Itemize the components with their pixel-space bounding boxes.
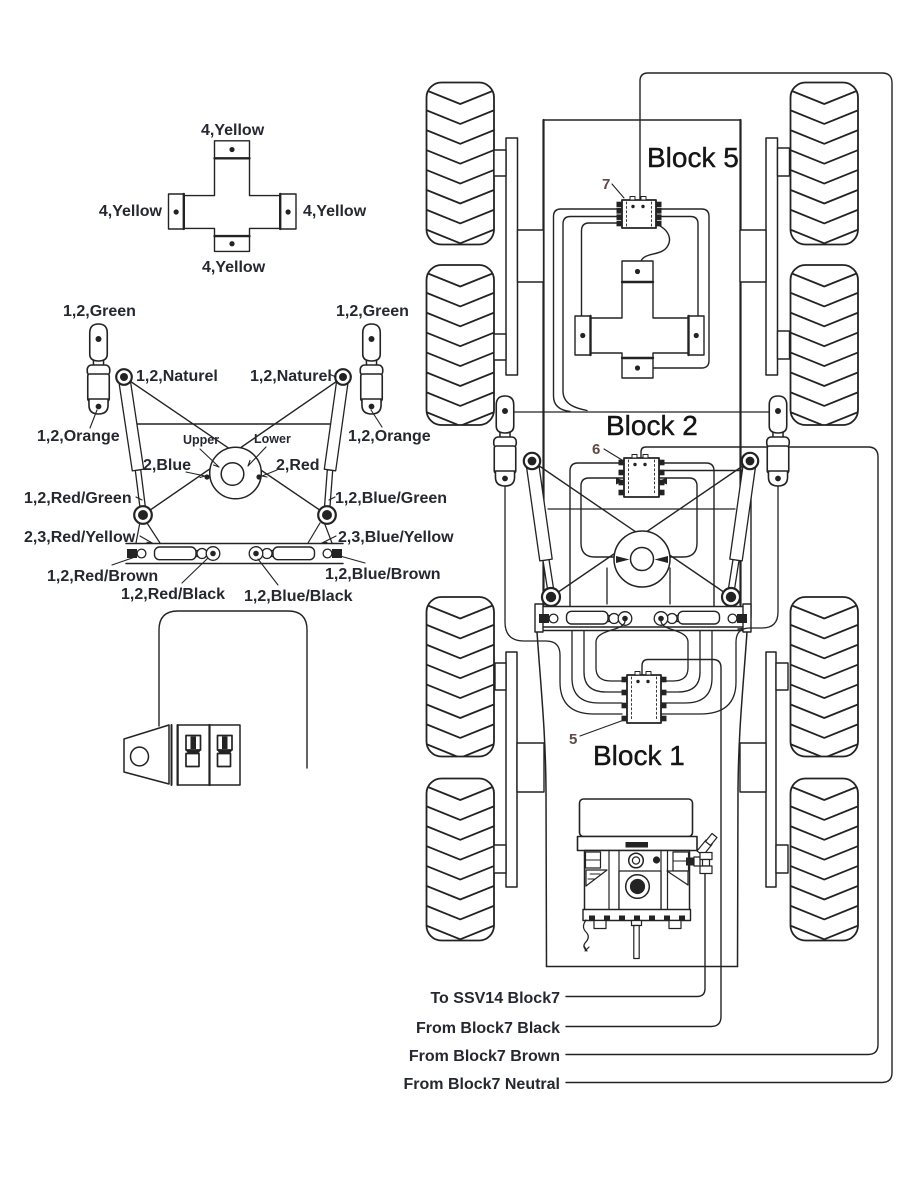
svg-text:1,2,Blue/Black: 1,2,Blue/Black — [244, 588, 353, 605]
svg-text:2,Blue: 2,Blue — [143, 457, 191, 474]
svg-text:Block 2: Block 2 — [606, 410, 698, 441]
svg-text:1,2,Red/Black: 1,2,Red/Black — [121, 586, 225, 603]
svg-text:1,2,Blue/Brown: 1,2,Blue/Brown — [325, 566, 441, 583]
svg-text:4,Yellow: 4,Yellow — [99, 203, 163, 220]
svg-text:1,2,Red/Green: 1,2,Red/Green — [24, 490, 132, 507]
svg-text:4,Yellow: 4,Yellow — [202, 259, 266, 276]
svg-text:1,2,Green: 1,2,Green — [336, 303, 409, 320]
svg-text:From Block7 Black: From Block7 Black — [416, 1020, 560, 1037]
svg-text:1,2,Red/Brown: 1,2,Red/Brown — [47, 568, 158, 585]
svg-text:4,Yellow: 4,Yellow — [303, 203, 367, 220]
svg-text:Upper: Upper — [183, 433, 219, 447]
svg-text:To SSV14 Block7: To SSV14 Block7 — [430, 990, 560, 1007]
svg-text:1,2,Blue/Green: 1,2,Blue/Green — [335, 490, 447, 507]
svg-text:6: 6 — [592, 441, 600, 458]
svg-text:Block 1: Block 1 — [593, 740, 685, 771]
svg-text:1,2,Orange: 1,2,Orange — [37, 428, 120, 445]
svg-text:From Block7 Brown: From Block7 Brown — [409, 1048, 560, 1065]
svg-text:From Block7 Neutral: From Block7 Neutral — [404, 1076, 560, 1093]
svg-text:5: 5 — [569, 731, 577, 748]
svg-text:2,3,Blue/Yellow: 2,3,Blue/Yellow — [338, 529, 454, 546]
svg-text:2,3,Red/Yellow: 2,3,Red/Yellow — [24, 529, 136, 546]
svg-text:Lower: Lower — [254, 432, 291, 446]
svg-text:1,2,Green: 1,2,Green — [63, 303, 136, 320]
svg-text:Block 5: Block 5 — [647, 142, 739, 173]
svg-text:1,2,Naturel: 1,2,Naturel — [250, 368, 332, 385]
svg-text:2,Red: 2,Red — [276, 457, 320, 474]
svg-text:1,2,Naturel: 1,2,Naturel — [136, 368, 218, 385]
svg-text:7: 7 — [602, 176, 610, 193]
svg-text:4,Yellow: 4,Yellow — [201, 122, 265, 139]
svg-text:1,2,Orange: 1,2,Orange — [348, 428, 431, 445]
